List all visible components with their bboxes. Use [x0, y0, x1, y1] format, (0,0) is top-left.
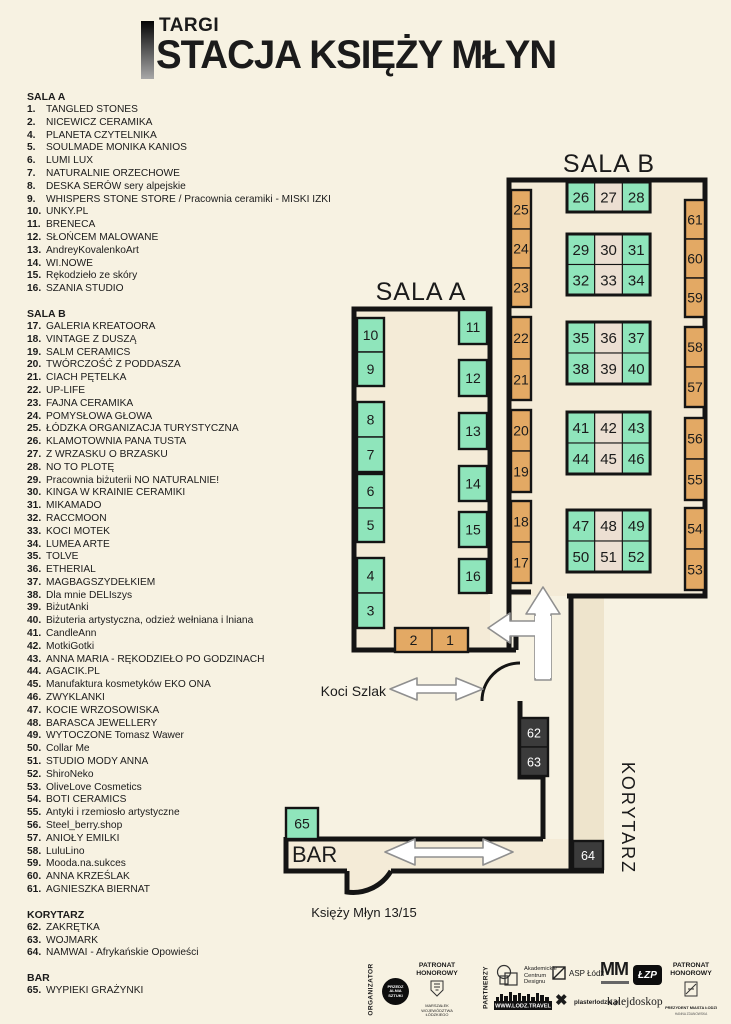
legend-item-name: POMYSŁOWA GŁOWA	[46, 411, 152, 422]
stall-number: 44	[573, 451, 590, 468]
stall-number: 14	[465, 476, 481, 492]
legend-item-name: MotkiGotki	[46, 641, 94, 652]
legend-item-name: SŁOŃCEM MALOWANE	[46, 232, 158, 243]
legend-item-number: 31.	[27, 500, 46, 513]
koci-szlak-arrow-icon	[390, 678, 483, 700]
legend-item-name: LuluLino	[46, 846, 85, 857]
acd-line: Designu	[524, 979, 557, 986]
stall-number: 15	[465, 522, 481, 538]
legend-item-name: NICEWICZ CERAMIKA	[46, 117, 152, 128]
legend-item-name: TOLVE	[46, 551, 78, 562]
stall-number: 16	[465, 568, 481, 584]
legend-item-number: 5.	[27, 142, 46, 155]
legend-item-number: 10.	[27, 206, 46, 219]
legend-item-name: UP-LIFE	[46, 385, 85, 396]
legend-item-name: WOJMARK	[46, 935, 98, 946]
legend-item-number: 58.	[27, 846, 46, 859]
patronat-2-subtext: PREZYDENT MIASTA ŁODZI	[664, 1006, 718, 1011]
legend-item-name: NO TO PLOTĘ	[46, 462, 114, 473]
legend-item-name: NAMWAI - Afrykańskie Opowieści	[46, 947, 198, 958]
legend-item-number: 9.	[27, 194, 46, 207]
legend-item-number: 21.	[27, 372, 46, 385]
legend-item-number: 43.	[27, 654, 46, 667]
legend-item-name: ShiroNeko	[46, 769, 94, 780]
legend-item-name: Mooda.na.sukces	[46, 858, 126, 869]
stall-number: 36	[600, 330, 617, 347]
stall-number: 19	[513, 464, 529, 480]
legend-item: 65.WYPIEKI GRAŻYNKI	[27, 985, 357, 998]
stall-number: 3	[367, 603, 375, 619]
stall-number: 51	[600, 549, 617, 566]
stall-number: 29	[573, 242, 590, 259]
legend-item-name: BOTI CERAMICS	[46, 794, 126, 805]
legend-item-name: KLAMOTOWNIA PANA TUSTA	[46, 436, 186, 447]
legend-item-name: KOCIE WRZOSOWISKA	[46, 705, 159, 716]
kalejdoskop-logo: kalejdoskop	[607, 996, 663, 1008]
stall-number: 11	[466, 319, 481, 335]
patronat-2-heading: PATRONAT HONOROWY	[664, 962, 718, 978]
partners-label: PARTNERZY	[483, 958, 490, 1018]
stall-number: 8	[367, 412, 375, 428]
patronat-honorowy-1: PATRONAT HONOROWY MARSZAŁEK WOJEWÓDZTWA …	[410, 962, 464, 1018]
stalls: 2524232221201918176160595857565554531098…	[286, 182, 705, 869]
stall-number: 34	[628, 272, 645, 289]
legend-item-number: 7.	[27, 168, 46, 181]
legend-item-number: 61.	[27, 884, 46, 897]
stall-number: 40	[628, 361, 645, 378]
stall-number: 47	[573, 518, 590, 535]
stall-number: 53	[687, 562, 703, 578]
stall-number: 12	[465, 370, 481, 386]
stall-number: 35	[573, 330, 590, 347]
legend-item-number: 34.	[27, 539, 46, 552]
legend-item-name: MIKAMADO	[46, 500, 101, 511]
legend-item: 63.WOJMARK	[27, 935, 357, 948]
stall-number: 37	[628, 330, 645, 347]
legend-item-name: Dla mnie DELIszys	[46, 590, 132, 601]
arrow-joint-fill	[538, 623, 549, 634]
legend-item-name: UNKY.PL	[46, 206, 88, 217]
stall-number: 25	[513, 202, 529, 218]
legend-item-name: KINGA W KRAINIE CERAMIKI	[46, 487, 185, 498]
koci-szlak-label: Koci Szlak	[321, 683, 387, 699]
bar-label: BAR	[292, 842, 337, 867]
stall-number: 65	[294, 816, 310, 832]
stall-number: 38	[573, 361, 590, 378]
legend-item-number: 44.	[27, 666, 46, 679]
poster-page: TARGI STACJA KSIĘŻY MŁYN SALA A1.TANGLED…	[0, 0, 731, 1024]
logo-line: SZTUKI	[388, 994, 402, 999]
legend-item-name: Z WRZASKU O BRZASKU	[46, 449, 168, 460]
legend-item-name: Antyki i rzemiosło artystyczne	[46, 807, 180, 818]
stall-number: 58	[687, 339, 703, 355]
legend-item-name: CandleAnn	[46, 628, 96, 639]
stall-number: 30	[600, 242, 617, 259]
stall-number: 60	[687, 251, 703, 267]
stall-number: 21	[513, 372, 529, 388]
stall-number: 59	[687, 290, 703, 306]
stall-number: 50	[573, 549, 590, 566]
legend-item-name: RACCMOON	[46, 513, 107, 524]
stall-number: 41	[573, 420, 590, 437]
legend-section-header: SALA A	[27, 91, 357, 104]
legend-item-name: WI.NOWE	[46, 258, 93, 269]
mm-logo: MM	[600, 961, 628, 978]
legend-item-number: 41.	[27, 628, 46, 641]
legend-item-number: 16.	[27, 283, 46, 296]
legend-item-number: 48.	[27, 718, 46, 731]
legend-item-number: 38.	[27, 590, 46, 603]
legend-item-name: AndreyKovalenkoArt	[46, 245, 139, 256]
legend-item-number: 62.	[27, 922, 46, 935]
stall-number: 49	[628, 518, 645, 535]
stall-number: 26	[573, 190, 590, 207]
legend-item-number: 28.	[27, 462, 46, 475]
arrow-seam-cover	[535, 616, 551, 678]
legend-item-number: 49.	[27, 730, 46, 743]
legend-section-header: BAR	[27, 972, 357, 985]
legend-item-name: ZAKRĘTKA	[46, 922, 100, 933]
legend-item-number: 42.	[27, 641, 46, 654]
legend-item-name: DESKA SERÓW sery alpejskie	[46, 181, 186, 192]
prezydent-crest-icon	[683, 981, 699, 999]
legend-item-name: AGACIK.PL	[46, 666, 100, 677]
stall-number: 28	[628, 190, 645, 207]
stall-number: 13	[465, 423, 481, 439]
stall-number: 33	[600, 272, 617, 289]
lzp-logo: ŁZP	[633, 965, 662, 985]
korytarz-floor	[571, 598, 604, 871]
patronat-honorowy-2: PATRONAT HONOROWY PREZYDENT MIASTA ŁODZI…	[664, 962, 718, 1016]
stall-number: 2	[410, 632, 418, 648]
stall-number: 10	[363, 327, 379, 343]
legend-item-number: 40.	[27, 615, 46, 628]
legend-item-name: Rękodzieło ze skóry	[46, 270, 137, 281]
legend-item-name: WYTOCZONE Tomasz Wawer	[46, 730, 184, 741]
stall-number: 63	[527, 756, 541, 770]
legend-item-number: 53.	[27, 782, 46, 795]
legend-item-name: Biżuteria artystyczna, odzież wełniana i…	[46, 615, 253, 626]
legend-item-name: ETHERIAL	[46, 564, 96, 575]
legend-item-number: 27.	[27, 449, 46, 462]
legend-item-name: BARASCA JEWELLERY	[46, 718, 157, 729]
stall-number: 64	[581, 849, 595, 863]
legend-item-name: GALERIA KREATOORA	[46, 321, 155, 332]
legend-item-number: 1.	[27, 104, 46, 117]
legend-item-name: TANGLED STONES	[46, 104, 138, 115]
stall-number: 56	[687, 431, 703, 447]
legend-item-number: 4.	[27, 130, 46, 143]
stall-number: 52	[628, 549, 645, 566]
stall-number: 46	[628, 451, 645, 468]
stall-number: 31	[628, 242, 645, 259]
stall-number: 43	[628, 420, 645, 437]
legend-item-number: 25.	[27, 423, 46, 436]
legend-item: 64.NAMWAI - Afrykańskie Opowieści	[27, 947, 357, 960]
legend-item-number: 57.	[27, 833, 46, 846]
legend-item-number: 20.	[27, 359, 46, 372]
stall-number: 62	[527, 727, 541, 741]
legend-item-number: 2.	[27, 117, 46, 130]
organizer-label: ORGANIZATOR	[368, 960, 375, 1020]
door-swing-arc	[482, 663, 520, 701]
legend-item-number: 18.	[27, 334, 46, 347]
legend-item-number: 37.	[27, 577, 46, 590]
legend-item-name: CIACH PĘTELKA	[46, 372, 126, 383]
stall-number: 6	[367, 483, 375, 499]
legend-item-name: BRENECA	[46, 219, 95, 230]
marszalek-crest-icon	[429, 980, 445, 997]
legend-item-name: ANNA MARIA - RĘKODZIEŁO PO GODZINACH	[46, 654, 265, 665]
legend-item-number: 36.	[27, 564, 46, 577]
stall-number: 24	[513, 241, 529, 257]
stall-number: 18	[513, 514, 529, 530]
stall-number: 1	[446, 632, 454, 648]
legend-item-number: 47.	[27, 705, 46, 718]
stall-number: 54	[687, 521, 703, 537]
legend-item-number: 24.	[27, 411, 46, 424]
legend-item-name: PLANETA CZYTELNIKA	[46, 130, 157, 141]
stall-number: 27	[600, 190, 617, 207]
sala-b-label: SALA B	[563, 150, 655, 178]
legend-item-number: 30.	[27, 487, 46, 500]
legend-item-number: 13.	[27, 245, 46, 258]
legend-item-number: 33.	[27, 526, 46, 539]
legend-item-name: TWÓRCZOŚĆ Z PODDASZA	[46, 359, 181, 370]
sala-a-label: SALA A	[376, 278, 467, 306]
legend-item-name: NATURALNIE ORZECHOWE	[46, 168, 180, 179]
mm-subtext-bar	[601, 981, 629, 984]
legend-item-name: Collar Me	[46, 743, 90, 754]
legend-item-number: 22.	[27, 385, 46, 398]
legend-item-name: SALM CERAMICS	[46, 347, 130, 358]
przedzialnia-sztuki-logo: PRZEDZ ALNIA SZTUKI	[382, 978, 409, 1005]
legend-item-name: FAJNA CERAMIKA	[46, 398, 133, 409]
legend-item-name: AGNIESZKA BIERNAT	[46, 884, 150, 895]
legend-item-number: 35.	[27, 551, 46, 564]
legend-item-number: 12.	[27, 232, 46, 245]
legend-item-name: ANIOŁY EMILKI	[46, 833, 119, 844]
legend-item-number: 15.	[27, 270, 46, 283]
legend-item-number: 23.	[27, 398, 46, 411]
legend-item-name: WYPIEKI GRAŻYNKI	[46, 985, 143, 996]
legend-item-number: 60.	[27, 871, 46, 884]
patronat-1-subtext: MARSZAŁEK WOJEWÓDZTWA ŁÓDZKIEGO	[410, 1004, 464, 1018]
entrance-label: Księży Młyn 13/15	[311, 905, 417, 920]
legend-item-number: 50.	[27, 743, 46, 756]
legend-item-number: 56.	[27, 820, 46, 833]
legend-item-number: 19.	[27, 347, 46, 360]
patronat-2-name: HANNA ZDANOWSKA	[664, 1012, 718, 1016]
legend-item-name: MAGBAGSZYDEŁKIEM	[46, 577, 155, 588]
legend-item-name: LUMEA ARTE	[46, 539, 110, 550]
title-gradient-bar	[141, 21, 154, 79]
legend-item-number: 26.	[27, 436, 46, 449]
legend-item-name: OliveLove Cosmetics	[46, 782, 142, 793]
patronat-1-heading: PATRONAT HONOROWY	[410, 962, 464, 978]
legend-item-number: 59.	[27, 858, 46, 871]
legend-item-name: ŁÓDZKA ORGANIZACJA TURYSTYCZNA	[46, 423, 239, 434]
legend-item-number: 46.	[27, 692, 46, 705]
legend-item-number: 32.	[27, 513, 46, 526]
stall-number: 7	[367, 447, 375, 463]
legend-item-number: 63.	[27, 935, 46, 948]
lodz-travel-text: WWW.LODZ.TRAVEL	[495, 1004, 551, 1010]
legend-item-number: 29.	[27, 475, 46, 488]
stall-number: 20	[513, 423, 529, 439]
acd-logo-icon	[496, 963, 521, 988]
korytarz-label: KORYTARZ	[618, 762, 638, 874]
legend-item-number: 14.	[27, 258, 46, 271]
legend-item-number: 6.	[27, 155, 46, 168]
asp-logo-icon	[552, 966, 566, 980]
floor-plan: 2524232221201918176160595857565554531098…	[283, 140, 731, 930]
stall-number: 17	[513, 555, 529, 571]
stall-number: 39	[600, 361, 617, 378]
legend-item-number: 45.	[27, 679, 46, 692]
legend-item-number: 8.	[27, 181, 46, 194]
stall-number: 61	[687, 212, 703, 228]
page-title: STACJA KSIĘŻY MŁYN	[156, 33, 556, 78]
legend-item-number: 39.	[27, 602, 46, 615]
legend-item-name: LUMI LUX	[46, 155, 93, 166]
stall-number: 42	[600, 420, 617, 437]
stall-number: 48	[600, 518, 617, 535]
legend-item-name: STUDIO MODY ANNA	[46, 756, 148, 767]
legend-item-name: SZANIA STUDIO	[46, 283, 124, 294]
stall-number: 5	[367, 517, 375, 533]
legend-item-number: 55.	[27, 807, 46, 820]
stall-number: 22	[513, 330, 529, 346]
legend-item: 1.TANGLED STONES	[27, 104, 357, 117]
legend-item-name: Steel_berry.shop	[46, 820, 122, 831]
stall-number: 4	[367, 568, 375, 584]
stall-number: 32	[573, 272, 590, 289]
legend-item-number: 64.	[27, 947, 46, 960]
legend-item-number: 54.	[27, 794, 46, 807]
lodz-travel-logo: WWW.LODZ.TRAVEL	[494, 991, 554, 1010]
plasterlodzki-x-icon: ✖	[555, 993, 568, 1008]
legend-item-number: 52.	[27, 769, 46, 782]
legend-item-name: ZWYKLANKI	[46, 692, 105, 703]
stall-number: 45	[600, 451, 617, 468]
stall-number: 23	[513, 280, 529, 296]
stall-number: 55	[687, 472, 703, 488]
legend-item-number: 65.	[27, 985, 46, 998]
legend-item-name: ANNA KRZEŚLAK	[46, 871, 130, 882]
legend-item: 2.NICEWICZ CERAMIKA	[27, 117, 357, 130]
legend-item-number: 51.	[27, 756, 46, 769]
legend-item-name: VINTAGE Z DUSZĄ	[46, 334, 136, 345]
legend-item-name: KOCI MOTEK	[46, 526, 110, 537]
legend-item-number: 17.	[27, 321, 46, 334]
stall-number: 57	[687, 379, 703, 395]
legend-item-name: Pracownia biżuterii NO NATURALNIE!	[46, 475, 219, 486]
legend-item-number: 11.	[27, 219, 46, 232]
legend-item-name: SOULMADE MONIKA KANIOS	[46, 142, 187, 153]
legend-item-name: Manufaktura kosmetyków EKO ONA	[46, 679, 211, 690]
legend-item-name: BiżutAnki	[46, 602, 88, 613]
stall-number: 9	[367, 361, 375, 377]
